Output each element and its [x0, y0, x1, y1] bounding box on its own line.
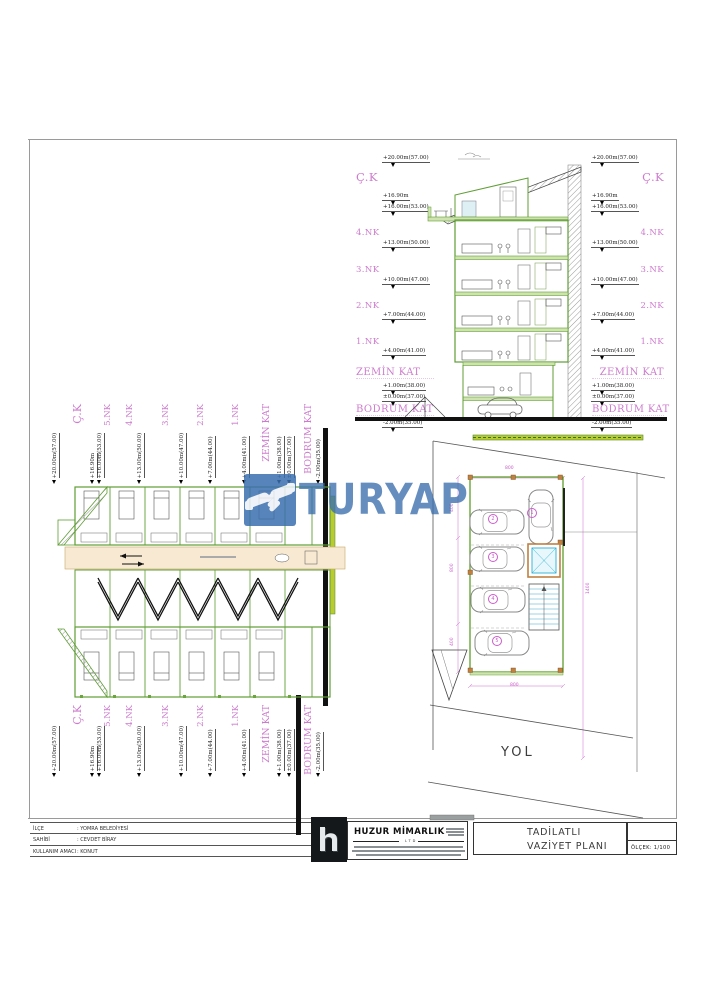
- dimension-label: 1400: [586, 583, 591, 594]
- parking-spot-number: 2: [488, 514, 498, 524]
- building-section-drawing: [350, 145, 680, 445]
- info-label: İLÇE: [33, 826, 44, 832]
- dimension-label: 800: [450, 563, 455, 572]
- firm-subtitle: LTD: [405, 839, 417, 843]
- dimension-label: 800: [505, 466, 514, 471]
- frame-top: [28, 139, 677, 140]
- parking-spot-number: 3: [488, 552, 498, 562]
- dimension-label: 800: [510, 683, 519, 688]
- drawing-sheet: +20.00m(57.00)Ç.K+16.90m+16.00m(53.00)4.…: [0, 0, 707, 1000]
- parking-spot-number: 4: [488, 594, 498, 604]
- info-label: SAHİBİ: [33, 837, 50, 843]
- frame-left: [29, 139, 30, 818]
- handshake-icon: [244, 474, 296, 526]
- turyap-watermark-text: TURYAP: [299, 477, 469, 523]
- turyap-logo: [244, 474, 296, 526]
- parking-spot-number: 1: [527, 508, 537, 518]
- parking-spot-number: 5: [492, 636, 502, 646]
- dimension-label: 400: [450, 637, 455, 646]
